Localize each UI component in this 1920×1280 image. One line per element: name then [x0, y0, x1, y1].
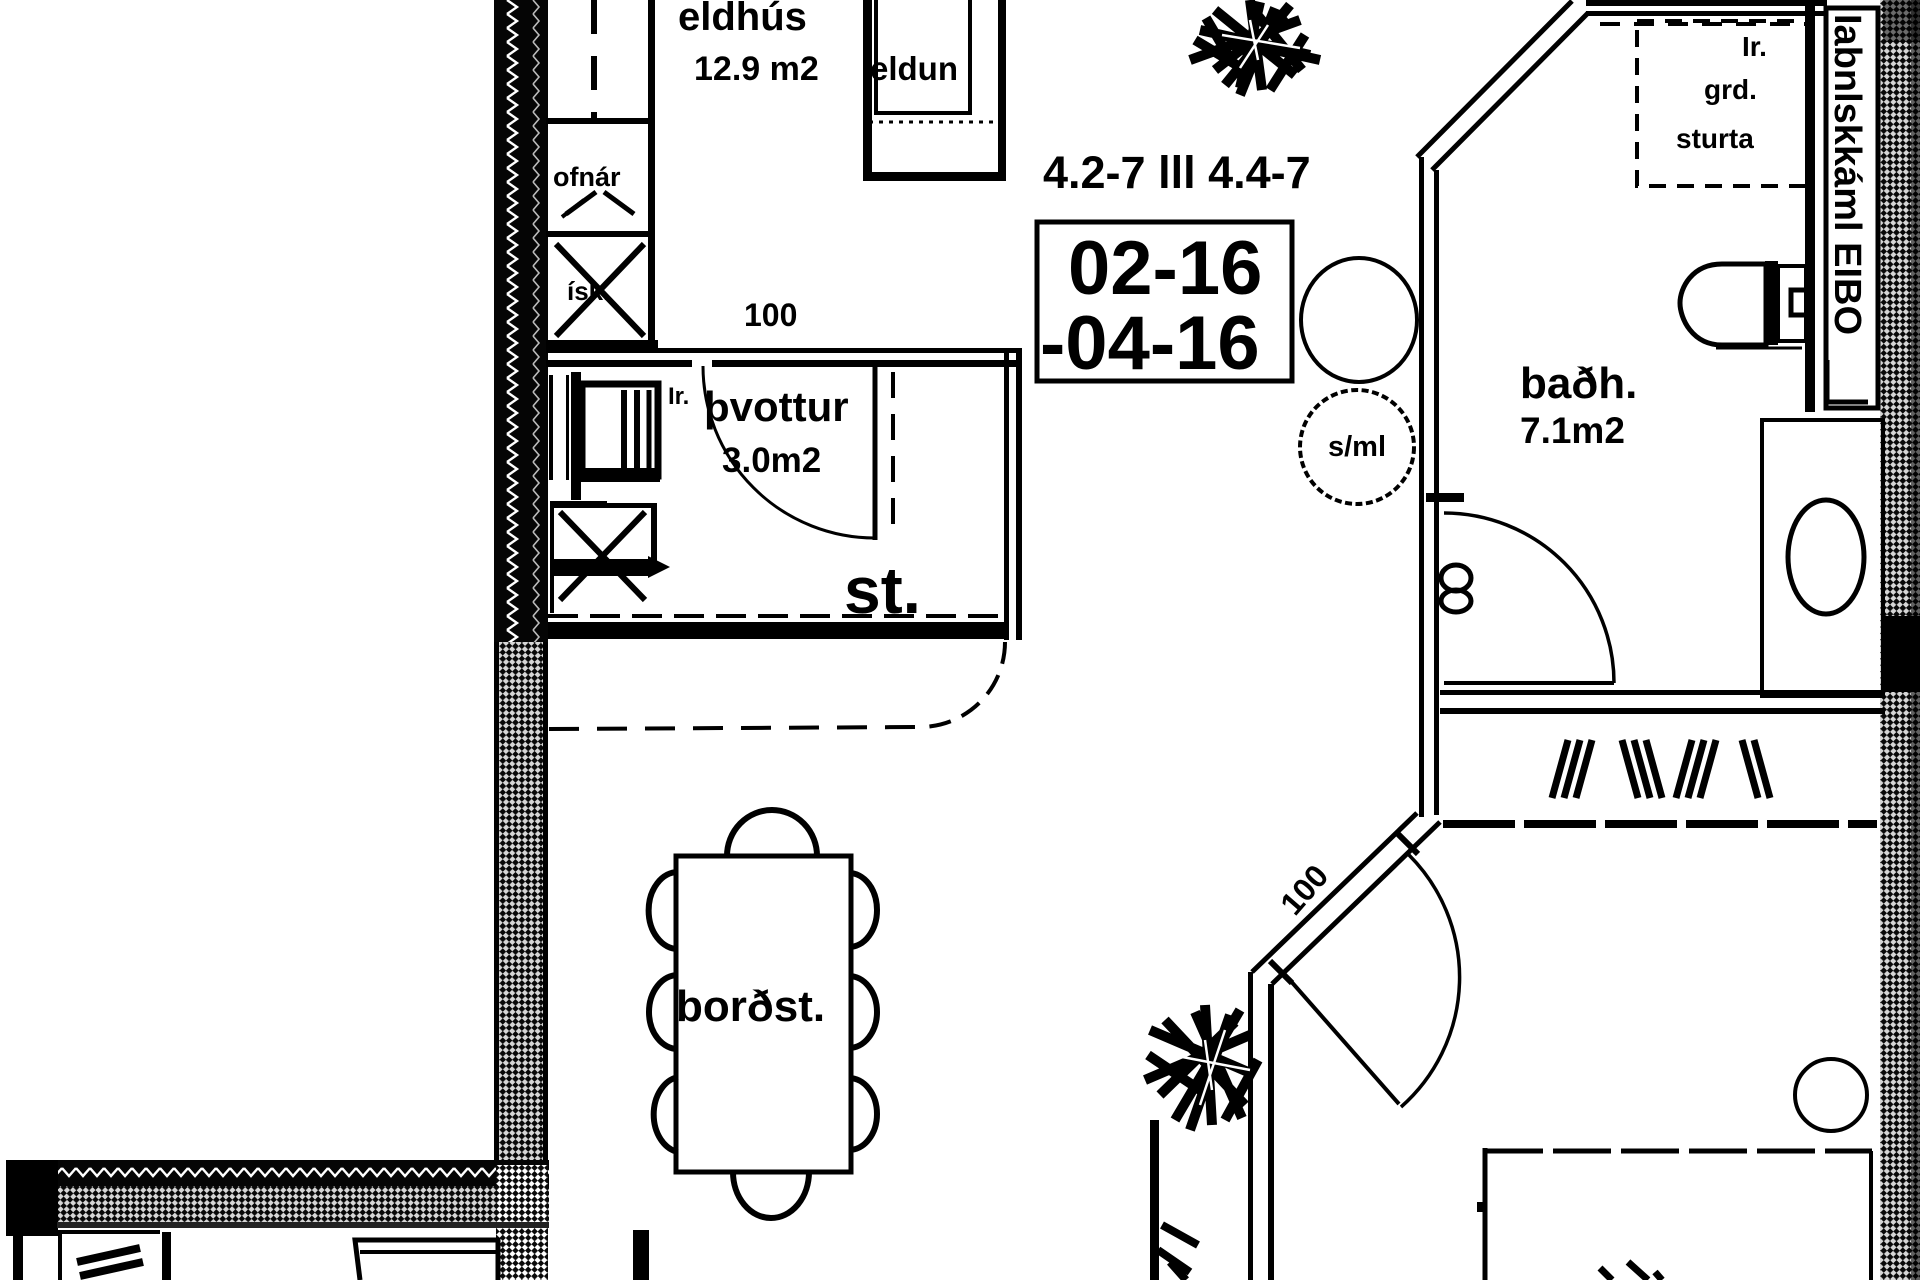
svg-text:grd.: grd.	[1704, 74, 1757, 105]
svg-text:ofnár: ofnár	[553, 162, 621, 192]
svg-text:3.0m2: 3.0m2	[722, 441, 821, 480]
svg-text:12.9 m2: 12.9 m2	[694, 50, 819, 88]
svg-text:Iabnlskkáml EIBO: Iabnlskkáml EIBO	[1826, 14, 1868, 335]
svg-text:þvottur: þvottur	[704, 383, 849, 430]
svg-text:eldun: eldun	[870, 50, 958, 87]
svg-text:-04-16: -04-16	[1040, 301, 1260, 386]
svg-text:02-16: 02-16	[1068, 226, 1262, 311]
svg-text:ísk.: ísk.	[567, 276, 610, 306]
svg-text:Ir.: Ir.	[1742, 31, 1767, 62]
svg-text:sturta: sturta	[1676, 123, 1754, 154]
svg-text:7.1m2: 7.1m2	[1520, 410, 1625, 451]
svg-text:baðh.: baðh.	[1520, 359, 1637, 408]
svg-text:eldhús: eldhús	[678, 0, 807, 39]
svg-text:4.2-7 lll 4.4-7: 4.2-7 lll 4.4-7	[1043, 147, 1311, 198]
svg-text:Ir.: Ir.	[668, 383, 689, 410]
svg-text:s/ml: s/ml	[1328, 431, 1386, 463]
svg-text:100: 100	[744, 297, 797, 333]
svg-text:borðst.: borðst.	[676, 982, 825, 1031]
